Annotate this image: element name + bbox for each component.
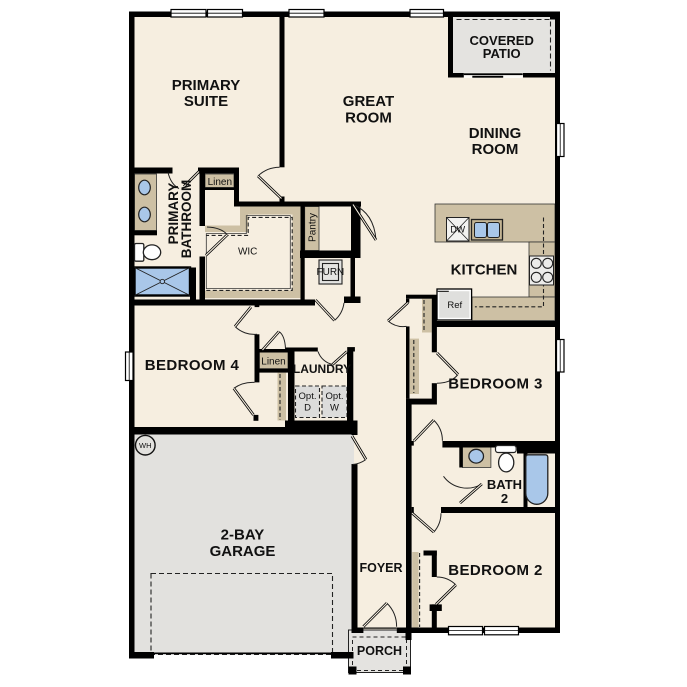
svg-text:D: D [304, 403, 311, 414]
svg-text:GARAGE: GARAGE [210, 543, 276, 560]
svg-text:BEDROOM 2: BEDROOM 2 [448, 562, 542, 579]
svg-text:Ref: Ref [447, 300, 462, 311]
svg-text:BATHROOM: BATHROOM [179, 180, 194, 259]
svg-text:DW: DW [450, 225, 465, 235]
svg-text:Linen: Linen [261, 356, 285, 367]
svg-text:FOYER: FOYER [359, 561, 402, 575]
svg-text:ROOM: ROOM [345, 109, 392, 126]
svg-text:DINING: DINING [469, 125, 522, 142]
svg-text:BEDROOM 3: BEDROOM 3 [448, 375, 542, 392]
svg-text:Pantry: Pantry [308, 213, 319, 242]
svg-text:ROOM: ROOM [472, 141, 519, 158]
svg-text:KITCHEN: KITCHEN [451, 262, 518, 279]
svg-text:W: W [330, 403, 339, 414]
svg-text:WIC: WIC [238, 247, 257, 258]
svg-text:WH: WH [139, 441, 152, 450]
svg-text:SUITE: SUITE [184, 93, 228, 110]
svg-text:2: 2 [501, 491, 508, 506]
svg-text:BATH: BATH [487, 477, 522, 492]
svg-text:FURN: FURN [317, 267, 345, 278]
svg-text:LAUNDRY: LAUNDRY [293, 362, 351, 376]
svg-text:PORCH: PORCH [357, 644, 402, 658]
svg-text:Linen: Linen [208, 177, 232, 188]
svg-text:2-BAY: 2-BAY [221, 527, 265, 544]
svg-text:PRIMARY: PRIMARY [172, 77, 241, 94]
svg-text:Opt.: Opt. [299, 391, 317, 402]
svg-text:BEDROOM 4: BEDROOM 4 [145, 357, 240, 374]
svg-text:GREAT: GREAT [343, 93, 394, 110]
svg-text:Opt.: Opt. [326, 391, 344, 402]
svg-text:PATIO: PATIO [483, 46, 521, 61]
